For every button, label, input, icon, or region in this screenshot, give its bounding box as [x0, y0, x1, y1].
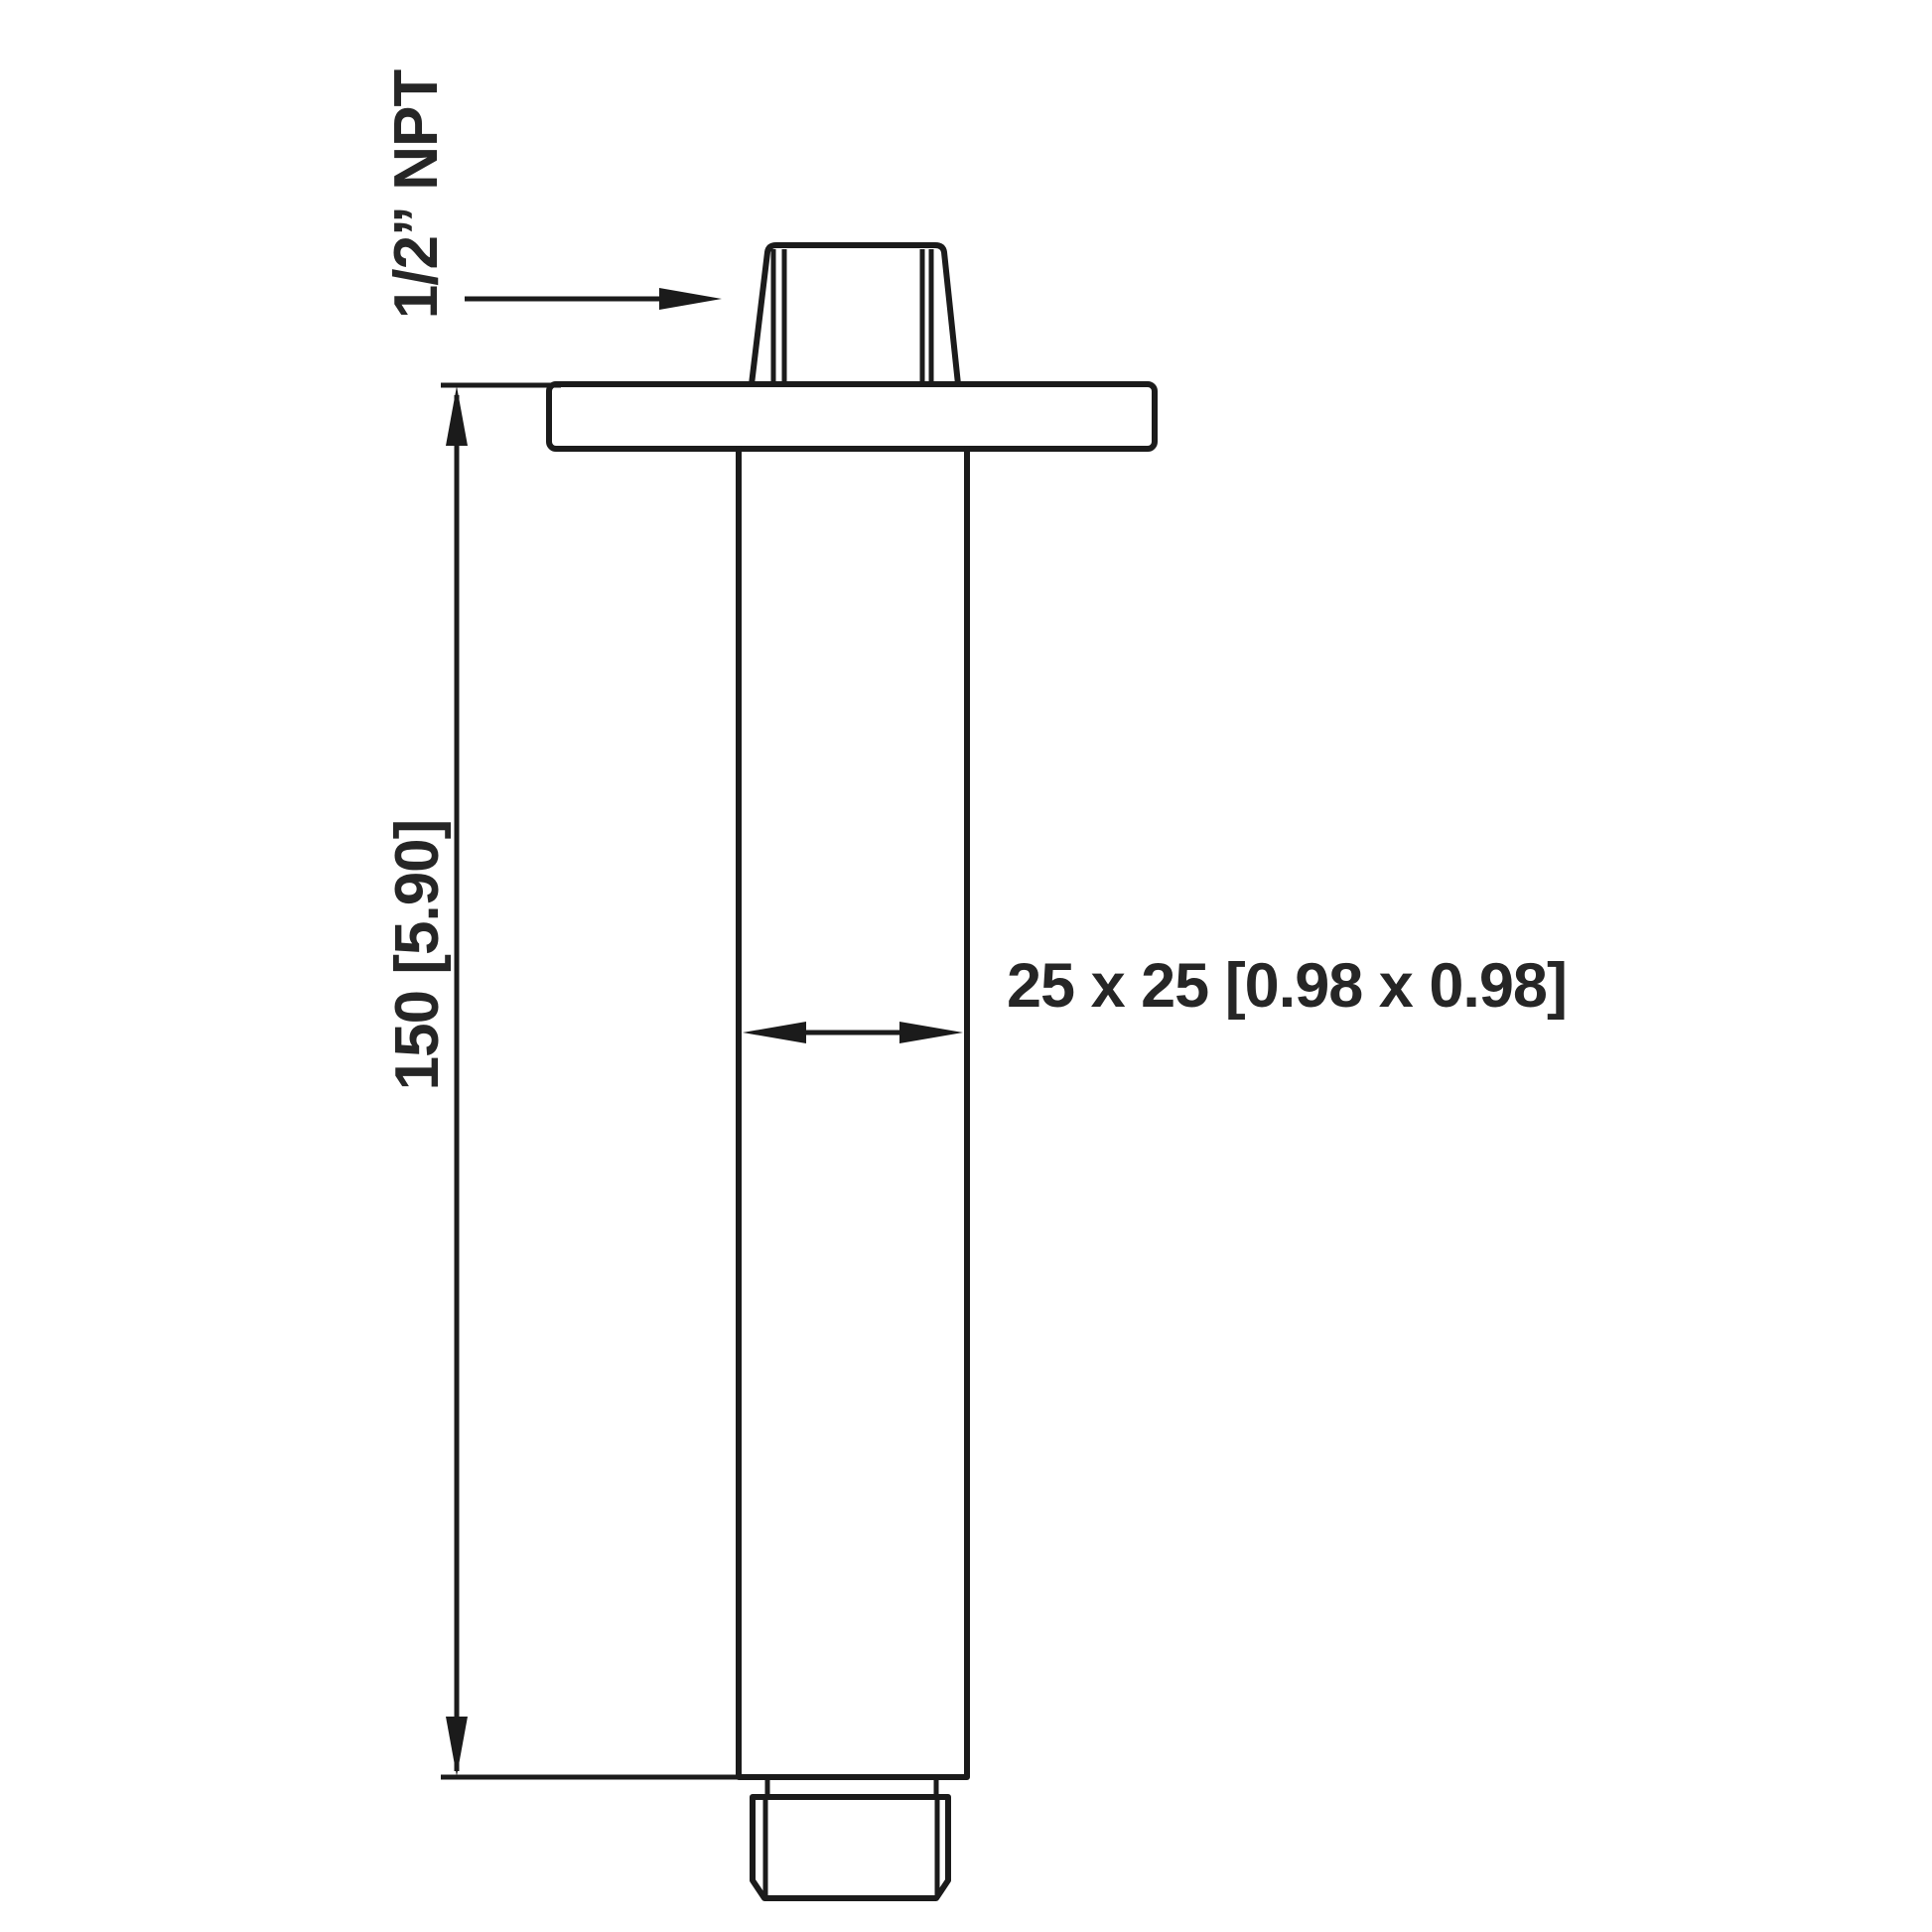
- drawing-canvas: 1/2” NPT 150 [5.90]: [0, 0, 1932, 1932]
- height-dimension: 150 [5.90]: [383, 385, 739, 1777]
- width-dimension-label: 25 x 25 [0.98 x 0.98]: [1007, 951, 1567, 1021]
- bottom-fitting-outline: [753, 1797, 948, 1898]
- top-threaded-fitting: [752, 245, 958, 384]
- npt-thread-label: 1/2” NPT: [382, 69, 451, 320]
- height-dimension-label: 150 [5.90]: [383, 820, 452, 1091]
- top-fitting-thread-lines: [773, 249, 931, 382]
- npt-thread-callout: 1/2” NPT: [382, 69, 722, 320]
- height-arrowhead-down-icon: [446, 1717, 468, 1776]
- width-arrowhead-left-icon: [743, 1022, 806, 1043]
- technical-drawing: 1/2” NPT 150 [5.90]: [0, 0, 1932, 1932]
- arm-tube: [739, 449, 967, 1777]
- npt-leader-arrowhead-icon: [659, 288, 722, 310]
- bottom-threaded-fitting: [753, 1777, 948, 1898]
- bottom-fitting-thread-lines: [765, 1799, 937, 1896]
- width-dimension: 25 x 25 [0.98 x 0.98]: [743, 951, 1567, 1043]
- height-arrowhead-up-icon: [446, 386, 468, 446]
- width-arrowhead-right-icon: [899, 1022, 963, 1043]
- ceiling-flange: [549, 384, 1155, 449]
